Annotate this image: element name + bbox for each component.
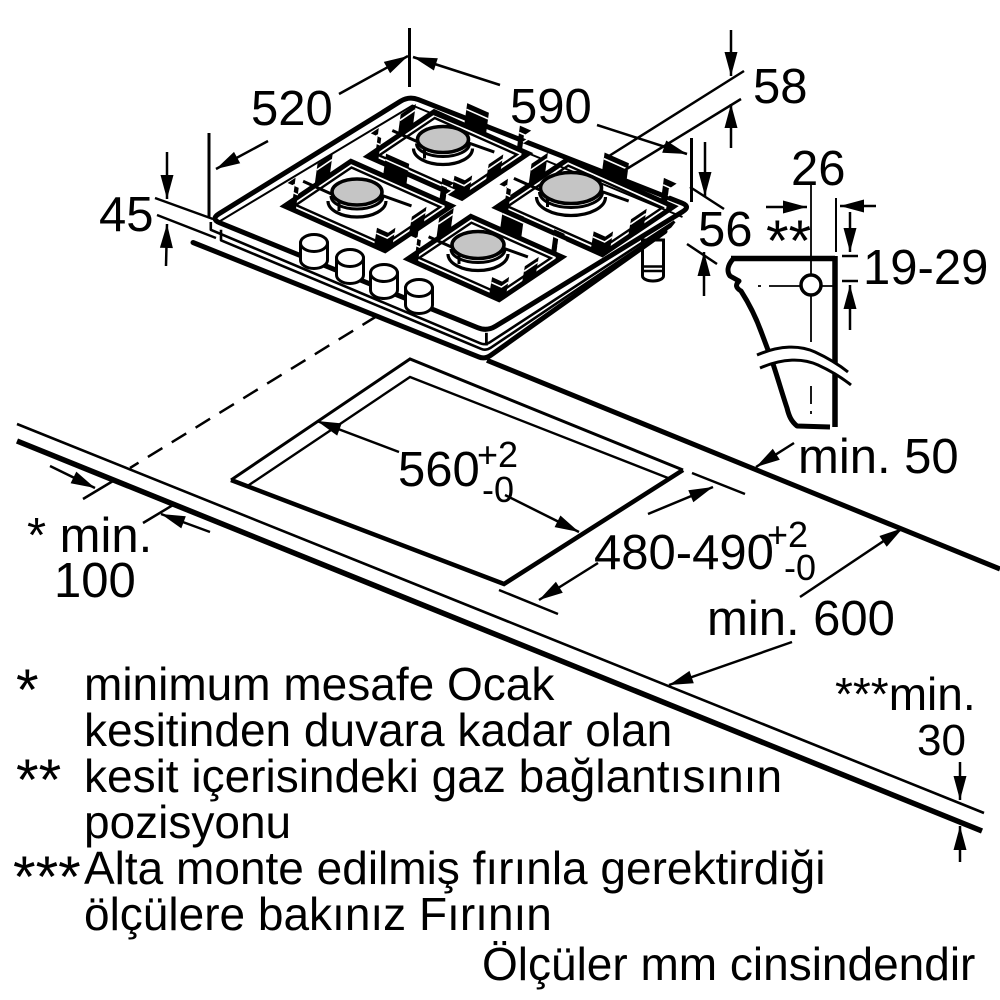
svg-text:30: 30: [917, 716, 966, 765]
svg-text:560: 560: [398, 443, 480, 497]
svg-text:minimum mesafe Ocak: minimum mesafe Ocak: [84, 658, 555, 710]
svg-text:480-490: 480-490: [594, 526, 774, 580]
svg-text:***: ***: [13, 845, 81, 910]
svg-text:590: 590: [510, 80, 592, 134]
svg-text:**: **: [16, 748, 61, 813]
svg-text:*: *: [16, 658, 39, 723]
svg-text:45: 45: [99, 188, 154, 242]
svg-text:**: **: [766, 209, 811, 274]
svg-text:26: 26: [791, 142, 846, 196]
svg-text:-0: -0: [784, 547, 816, 588]
svg-text:100: 100: [54, 554, 136, 608]
svg-text:pozisyonu: pozisyonu: [84, 796, 291, 848]
svg-text:kesitinden duvara kadar olan: kesitinden duvara kadar olan: [84, 704, 672, 756]
svg-text:ölçülere bakınız Fırının: ölçülere bakınız Fırının: [84, 888, 552, 940]
svg-text:Ölçüler mm cinsindendir: Ölçüler mm cinsindendir: [482, 938, 975, 990]
svg-text:***min.: ***min.: [835, 668, 976, 720]
svg-text:min. 50: min. 50: [798, 430, 959, 484]
svg-text:kesit içerisindeki gaz bağlant: kesit içerisindeki gaz bağlantısının: [84, 750, 782, 802]
svg-text:Alta monte edilmiş fırınla ger: Alta monte edilmiş fırınla gerektirdiği: [84, 842, 825, 894]
svg-text:-0: -0: [482, 469, 514, 510]
svg-text:520: 520: [251, 82, 333, 136]
svg-text:19-29: 19-29: [863, 241, 988, 295]
svg-text:58: 58: [753, 60, 808, 114]
svg-text:56: 56: [698, 203, 753, 257]
svg-text:min. 600: min. 600: [707, 592, 895, 646]
